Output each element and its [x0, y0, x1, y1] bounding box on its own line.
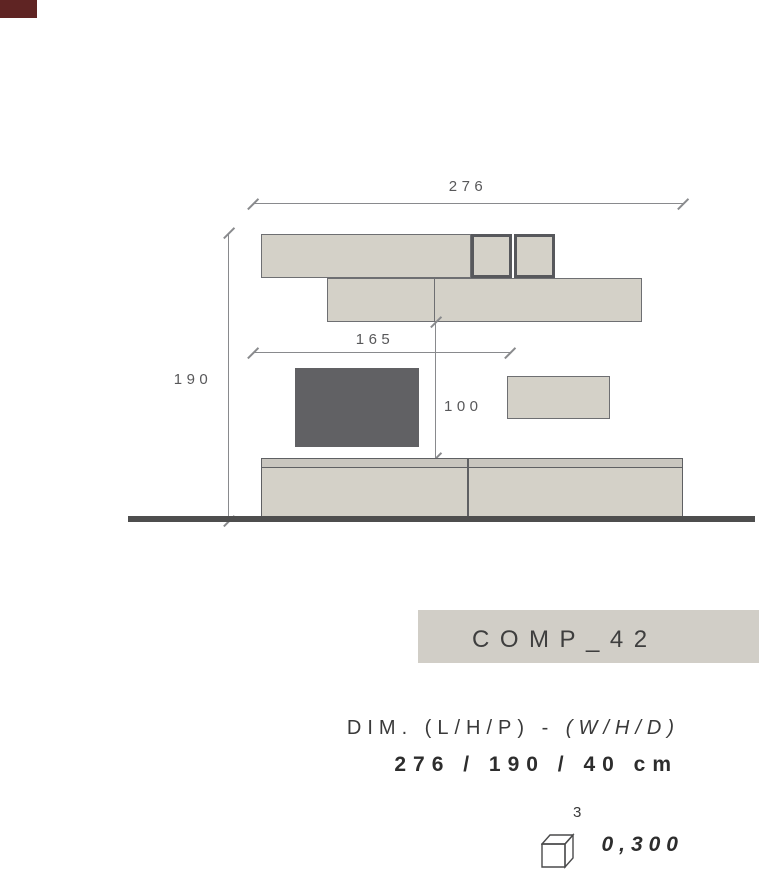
tv-panel [295, 368, 419, 447]
base-top-strip [262, 459, 682, 468]
dim-partial-width-label: 165 [315, 331, 435, 348]
dim-partial-height-line [435, 322, 436, 458]
dim-value-text: 276 / 190 / 40 cm [278, 752, 678, 778]
wall-shelf-row2-divider [434, 279, 435, 321]
comp-label-box: COMP_42 [418, 610, 759, 663]
volume-value: 0,300 [560, 833, 684, 857]
dim-height-label: 190 [158, 371, 228, 388]
floor-line [128, 516, 755, 522]
dim-heading: DIM. (L/H/P) - (W/H/D) [279, 716, 680, 741]
comp-label-text: COMP_42 [472, 619, 658, 654]
dim-heading-metric: (W/H/D) [566, 717, 680, 739]
wall-cube-right [514, 234, 555, 278]
wall-shelf-small [507, 376, 610, 419]
wall-shelf-long [261, 234, 471, 278]
elevation-drawing: 276 190 165 100 [0, 0, 759, 560]
dim-heading-prefix: DIM. (L/H/P) - [347, 717, 566, 739]
wall-cube-left [471, 234, 512, 278]
dim-partial-width-line [253, 352, 510, 353]
dim-width-label: 276 [408, 178, 528, 195]
base-divider [467, 459, 469, 517]
wall-shelf-row2 [327, 278, 642, 322]
dim-height-line [228, 233, 229, 521]
dim-width-line [253, 203, 683, 204]
cube-exponent: 3 [573, 804, 582, 821]
